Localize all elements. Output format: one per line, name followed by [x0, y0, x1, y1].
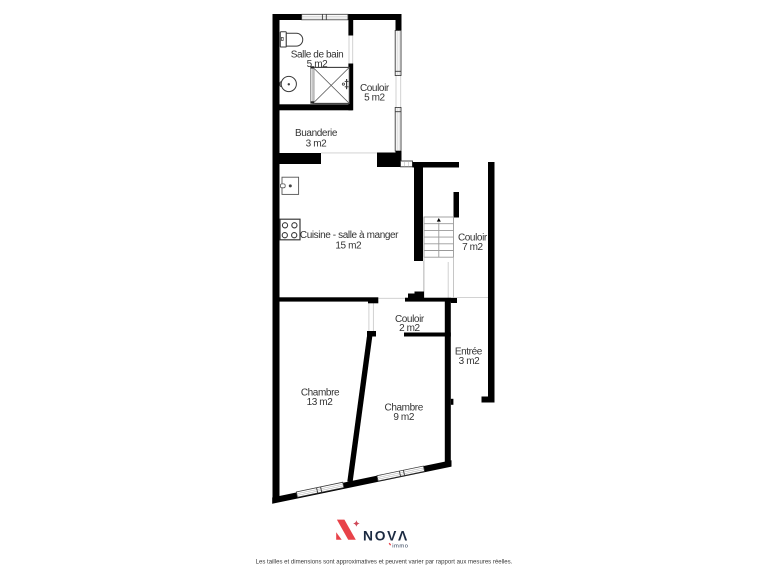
svg-text:13 m2: 13 m2 [307, 397, 334, 408]
svg-text:immo: immo [392, 543, 408, 549]
svg-text:15 m2: 15 m2 [335, 241, 362, 252]
svg-text:NOVΛ: NOVΛ [363, 528, 409, 543]
svg-text:3 m2: 3 m2 [306, 139, 327, 150]
svg-text:3 m2: 3 m2 [459, 356, 480, 367]
svg-text:Cuisine - salle à manger: Cuisine - salle à manger [300, 230, 399, 241]
svg-text:5 m2: 5 m2 [364, 93, 385, 104]
svg-text:5 m2: 5 m2 [307, 59, 328, 70]
svg-text:2 m2: 2 m2 [399, 323, 420, 334]
svg-text:7 m2: 7 m2 [462, 242, 483, 253]
svg-text:Les tailles et dimensions sont: Les tailles et dimensions sont approxima… [256, 559, 513, 565]
svg-text:9 m2: 9 m2 [393, 412, 414, 423]
